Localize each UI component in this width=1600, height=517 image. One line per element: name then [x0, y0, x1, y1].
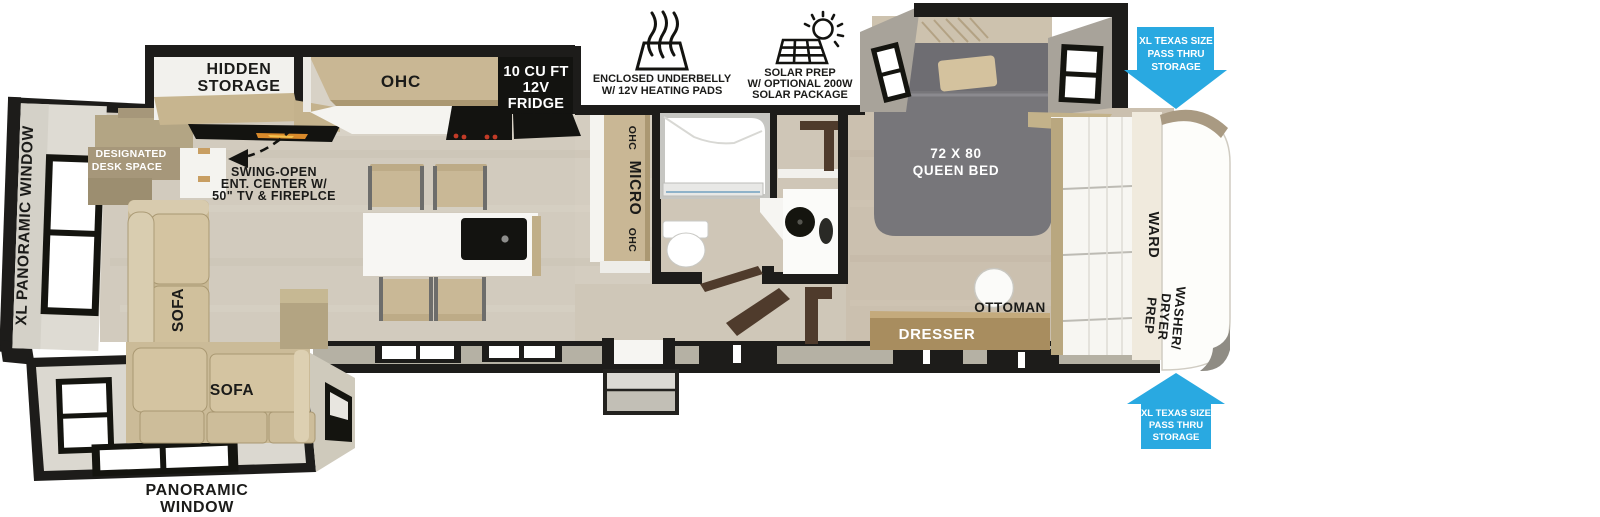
svg-text:STORAGE: STORAGE [197, 78, 280, 95]
svg-text:12V: 12V [523, 80, 550, 96]
svg-text:PASS THRU: PASS THRU [1149, 420, 1203, 431]
svg-text:DRESSER: DRESSER [899, 326, 976, 343]
svg-text:10 CU FT: 10 CU FT [503, 64, 568, 80]
svg-text:OHC: OHC [381, 72, 421, 91]
svg-text:STORAGE: STORAGE [1151, 62, 1201, 73]
svg-text:HIDDEN: HIDDEN [207, 61, 272, 78]
svg-text:WARD: WARD [1145, 212, 1161, 259]
svg-text:W/ 12V HEATING PADS: W/ 12V HEATING PADS [602, 85, 723, 97]
svg-text:SOFA: SOFA [210, 382, 254, 399]
svg-text:DESK SPACE: DESK SPACE [92, 161, 163, 173]
svg-text:QUEEN BED: QUEEN BED [913, 163, 1000, 178]
svg-text:50" TV & FIREPLCE: 50" TV & FIREPLCE [212, 189, 336, 203]
svg-text:FRIDGE: FRIDGE [508, 96, 565, 112]
svg-text:PASS THRU: PASS THRU [1147, 49, 1204, 60]
svg-text:OHC: OHC [626, 228, 638, 253]
svg-text:ENCLOSED UNDERBELLY: ENCLOSED UNDERBELLY [593, 73, 732, 85]
svg-text:XL TEXAS SIZE: XL TEXAS SIZE [1141, 408, 1211, 419]
svg-text:STORAGE: STORAGE [1153, 432, 1200, 443]
svg-text:OHC: OHC [626, 126, 638, 151]
svg-text:XL TEXAS SIZE: XL TEXAS SIZE [1139, 36, 1213, 47]
svg-text:DESIGNATED: DESIGNATED [95, 148, 166, 160]
svg-text:72 X 80: 72 X 80 [930, 146, 981, 161]
svg-text:MICRO: MICRO [626, 161, 643, 216]
svg-text:SOLAR PACKAGE: SOLAR PACKAGE [752, 89, 848, 101]
svg-text:PANORAMIC: PANORAMIC [146, 482, 249, 499]
svg-text:WINDOW: WINDOW [160, 499, 234, 516]
svg-text:PREP: PREP [1141, 297, 1159, 335]
svg-text:SOFA: SOFA [170, 288, 187, 332]
